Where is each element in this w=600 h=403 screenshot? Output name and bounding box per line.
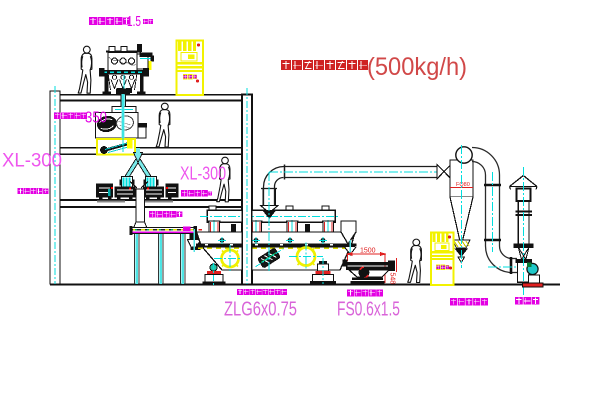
svg-text:1.5: 1.5 [127,13,141,30]
svg-text:XL-300: XL-300 [180,164,226,184]
svg-text:350: 350 [85,110,107,127]
svg-text:(500kg/h): (500kg/h) [367,53,467,81]
svg-text:1500: 1500 [360,248,376,255]
svg-text:FQ80: FQ80 [456,182,470,188]
svg-text:XL-300: XL-300 [2,151,62,172]
svg-text:ZLG6x0.75: ZLG6x0.75 [224,299,297,321]
svg-text:548: 548 [389,273,396,285]
svg-text:FS0.6x1.5: FS0.6x1.5 [337,299,400,321]
